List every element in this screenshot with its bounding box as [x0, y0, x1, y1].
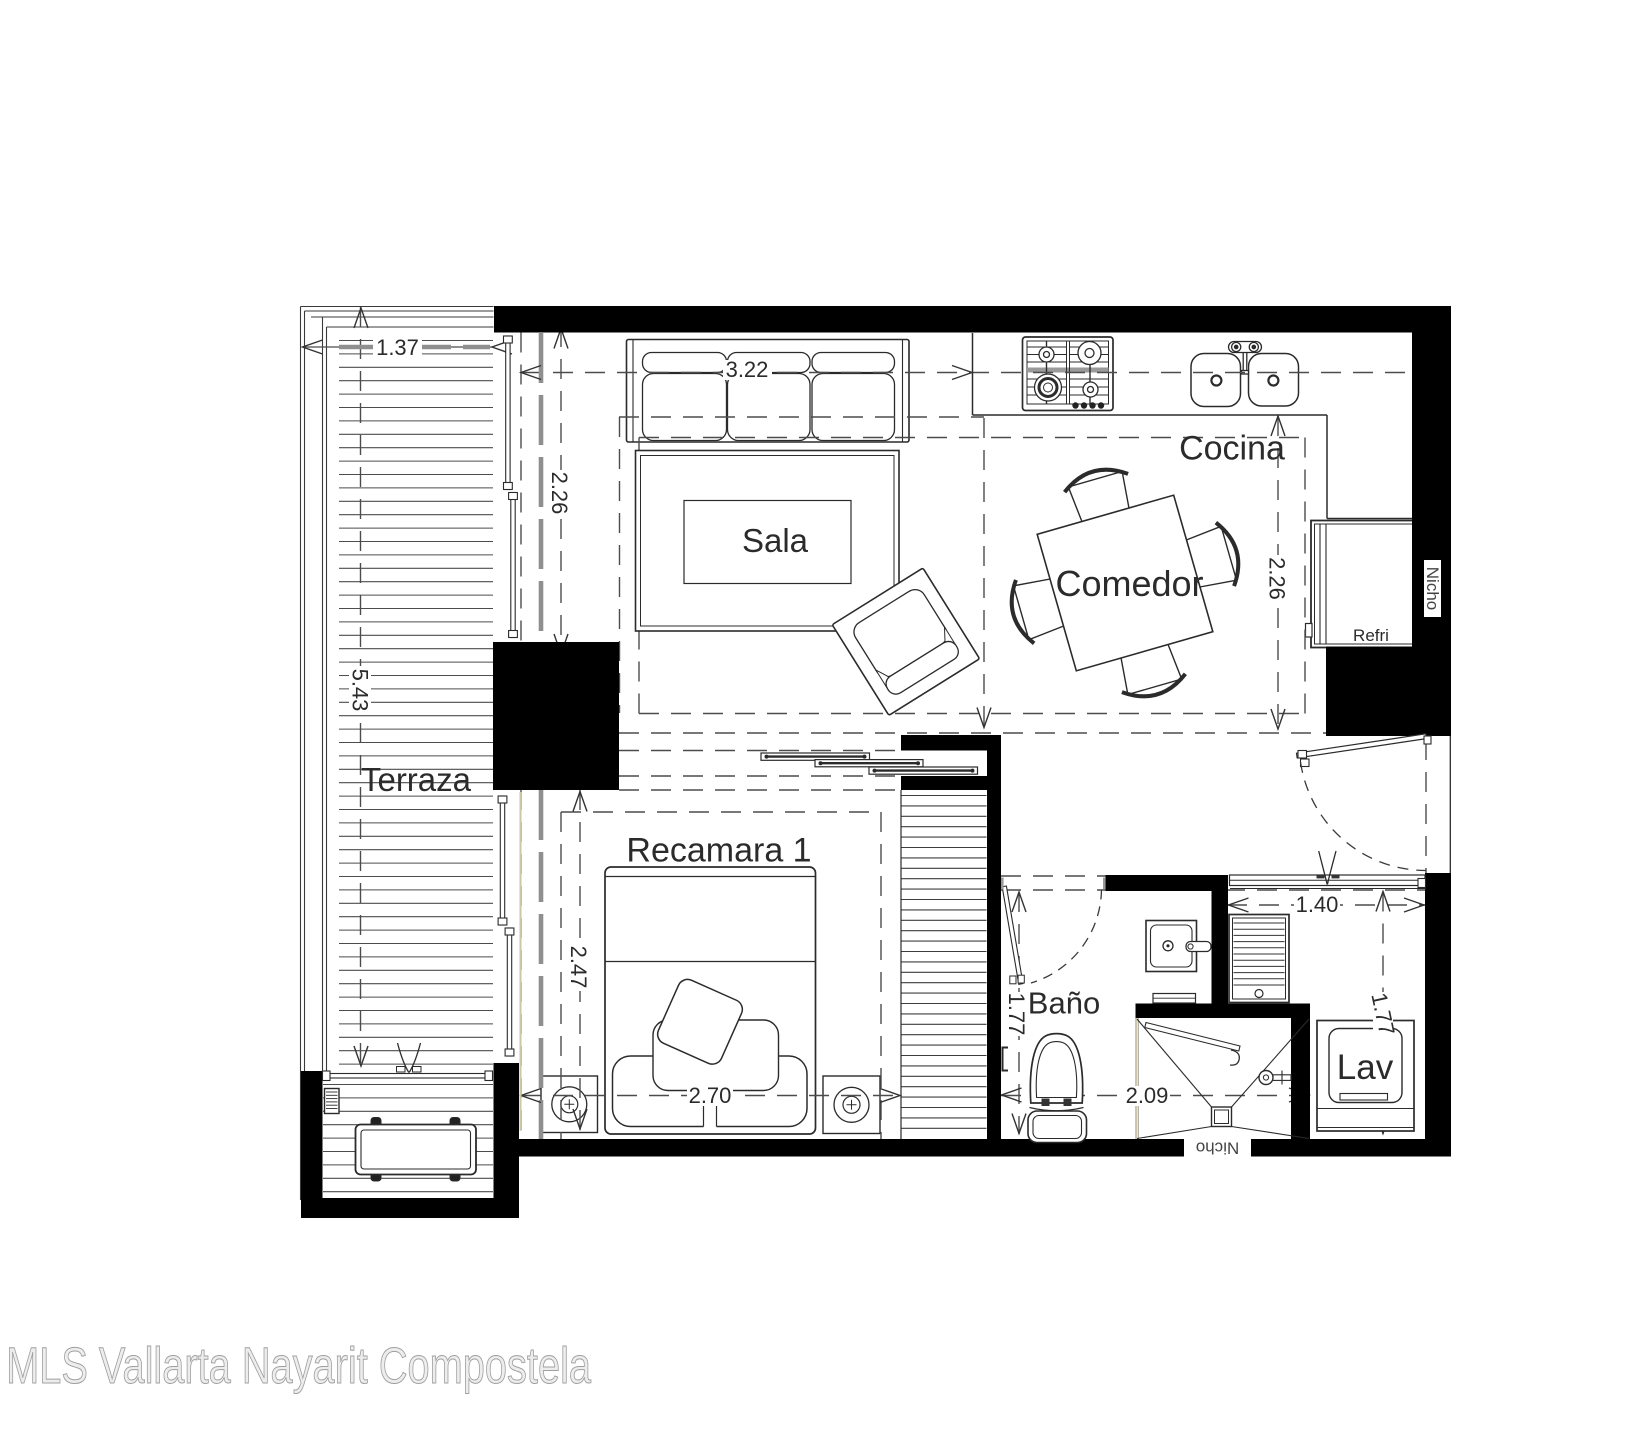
svg-text:Cocina: Cocina [1179, 430, 1285, 468]
svg-text:2.70: 2.70 [689, 1083, 732, 1108]
svg-text:Recamara 1: Recamara 1 [626, 832, 811, 870]
svg-text:1.40: 1.40 [1296, 892, 1339, 917]
svg-text:Lav: Lav [1337, 1048, 1394, 1087]
svg-text:Sala: Sala [742, 522, 809, 559]
svg-text:Terraza: Terraza [361, 761, 472, 798]
svg-text:2.26: 2.26 [547, 472, 572, 515]
svg-text:Baño: Baño [1028, 986, 1100, 1021]
svg-text:2.47: 2.47 [566, 946, 591, 989]
svg-text:Comedor: Comedor [1055, 563, 1203, 604]
svg-text:1.77: 1.77 [1004, 993, 1029, 1036]
svg-text:1.37: 1.37 [376, 335, 419, 360]
svg-text:5.43: 5.43 [348, 669, 373, 712]
svg-text:MLS Vallarta Nayarit Compostel: MLS Vallarta Nayarit Compostela [6, 1337, 591, 1394]
svg-text:Nicho: Nicho [1196, 1138, 1239, 1157]
svg-text:2.09: 2.09 [1126, 1083, 1169, 1108]
svg-text:3.22: 3.22 [726, 357, 769, 382]
svg-text:2.26: 2.26 [1265, 557, 1290, 600]
svg-text:Refri: Refri [1353, 626, 1389, 645]
svg-text:Nicho: Nicho [1423, 567, 1442, 610]
